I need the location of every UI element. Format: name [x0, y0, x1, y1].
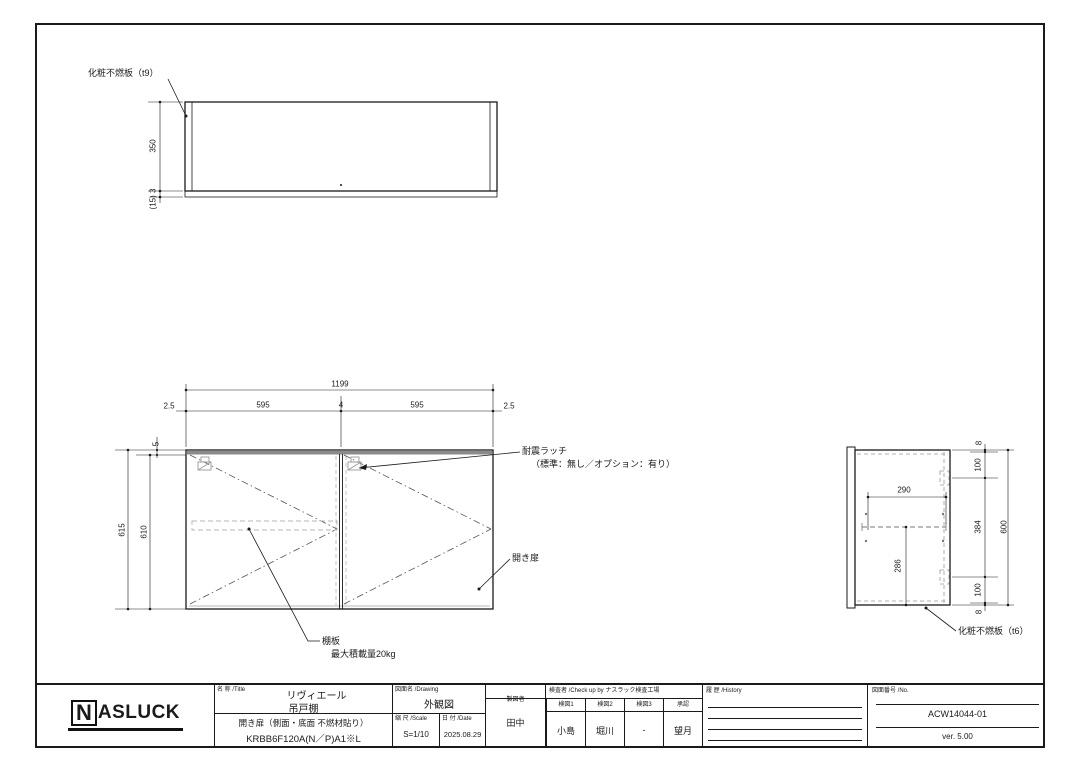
dim-side-seg-mid: 384: [974, 520, 983, 533]
number-cell: 図面番号 /No. ACW14044-01 ver. 5.00: [867, 685, 1047, 746]
number-rule-2: [876, 727, 1039, 728]
history-rule-1: [708, 707, 862, 708]
shelf-label: 棚板: [322, 636, 340, 647]
drawing-name: 外観図: [424, 696, 454, 711]
check-col-4-value: 望月: [664, 712, 702, 748]
check-col-3-value: -: [625, 712, 663, 748]
number-header: 図面番号 /No.: [872, 688, 909, 695]
dim-front-gap-right: 2.5: [503, 402, 514, 411]
side-view-drawing: [847, 444, 1014, 631]
drawing-header: 図面名 /Drawing: [395, 687, 438, 694]
dim-side-door-height: 600: [1000, 520, 1009, 533]
drafter-name: 田中: [486, 699, 545, 746]
drawing-number: ACW14044-01: [928, 709, 987, 719]
nasluck-logo: N ASLUCK: [68, 700, 183, 731]
latch-icon: [198, 457, 361, 470]
check-col-2: 検図2 堀川: [585, 699, 624, 746]
check-col-3: 検図3 -: [624, 699, 663, 746]
drawing-cell: 図面名 /Drawing 外観図 縮 尺 /Scale S=1/10 日 付 /…: [392, 685, 485, 746]
product-name-line3: 開き扉（側面・底面 不燃材貼り）: [239, 717, 369, 729]
scale-cell: 縮 尺 /Scale S=1/10: [393, 714, 440, 748]
dim-front-height-outer: 615: [118, 523, 127, 536]
history-rule-3: [708, 729, 862, 730]
date-cell: 日 付 /Date 2025.08.29: [440, 714, 485, 748]
dim-front-center-gap: 4: [339, 401, 343, 410]
logo-n-box: N: [71, 700, 97, 726]
history-header: 履 歴 /History: [706, 688, 742, 695]
name-header: 名 称 /Title: [217, 687, 245, 694]
dim-top-bottom: (15) 3: [149, 189, 158, 210]
latch-note-label: （標準：無し／オプション：有り）: [531, 459, 675, 470]
top-view-panel-label: 化粧不燃板（t9）: [88, 68, 159, 79]
product-name-line2: 吊戸棚: [289, 700, 319, 715]
check-col-1: 検図1 小島: [546, 699, 585, 746]
front-view-drawing: [115, 384, 520, 641]
drafter-header: 製図者: [506, 697, 524, 703]
drawing-sheet: 化粧不燃板（t9） 350 (15) 3 1199 2.5 595 4 595 …: [0, 0, 1080, 764]
door-label: 開き扉: [512, 553, 539, 564]
dim-side-shelf-height: 286: [894, 559, 903, 572]
history-rule-4: [708, 740, 862, 741]
check-col-2-label: 検図2: [586, 699, 624, 712]
check-col-4-label: 承認: [664, 699, 702, 712]
dim-side-shelf-depth: 290: [897, 486, 910, 495]
date-value: 2025.08.29: [444, 730, 482, 739]
product-code: KRBB6F120A(N／P)A1※L: [246, 731, 361, 745]
dim-front-door-right: 595: [410, 401, 423, 410]
check-col-2-value: 堀川: [586, 712, 624, 748]
dim-side-seg-bottom: 8: [975, 610, 984, 614]
check-col-1-label: 検図1: [547, 699, 585, 712]
check-cell: 検査者 /Check up by ナスラック検査工場 検図1 小島 検図2 堀川…: [545, 685, 702, 746]
title-block: N ASLUCK 名 称 /Title リヴィエール 吊戸棚 開き扉（側面・底面…: [35, 683, 1045, 748]
side-panel-label: 化粧不燃板（t6）: [958, 626, 1029, 637]
dim-front-door-left: 595: [256, 401, 269, 410]
history-cell: 履 歴 /History: [702, 685, 867, 746]
history-rule-2: [708, 718, 862, 719]
latch-label: 耐震ラッチ: [522, 446, 567, 457]
logo-text: ASLUCK: [98, 702, 180, 724]
title-cell: 名 称 /Title リヴィエール 吊戸棚 開き扉（側面・底面 不燃材貼り） K…: [214, 685, 392, 746]
scale-header: 縮 尺 /Scale: [395, 716, 427, 723]
cad-linework: [0, 0, 1080, 764]
dim-side-seg-lower: 100: [974, 583, 983, 596]
version: ver. 5.00: [942, 732, 973, 741]
drafter-cell: 製図者 田中: [485, 685, 545, 746]
dim-side-seg-upper: 100: [974, 458, 983, 471]
dim-front-top-panel: 5: [152, 442, 161, 446]
check-col-4: 承認 望月: [663, 699, 702, 746]
dim-front-height-inner: 610: [140, 525, 149, 538]
scale-value: S=1/10: [403, 730, 429, 739]
check-col-3-label: 検図3: [625, 699, 663, 712]
dim-side-seg-top: 8: [975, 441, 984, 445]
check-col-1-value: 小島: [547, 712, 585, 748]
number-rule-1: [876, 704, 1039, 705]
dim-top-height: 350: [149, 139, 158, 152]
logo-cell: N ASLUCK: [37, 685, 214, 746]
shelf-note-label: 最大積載量20kg: [331, 649, 396, 660]
check-header: 検査者 /Check up by ナスラック検査工場: [549, 688, 659, 695]
date-header: 日 付 /Date: [442, 716, 472, 723]
dim-front-total-width: 1199: [331, 380, 348, 389]
dim-front-gap-left: 2.5: [163, 402, 174, 411]
top-view-drawing: [148, 79, 497, 203]
